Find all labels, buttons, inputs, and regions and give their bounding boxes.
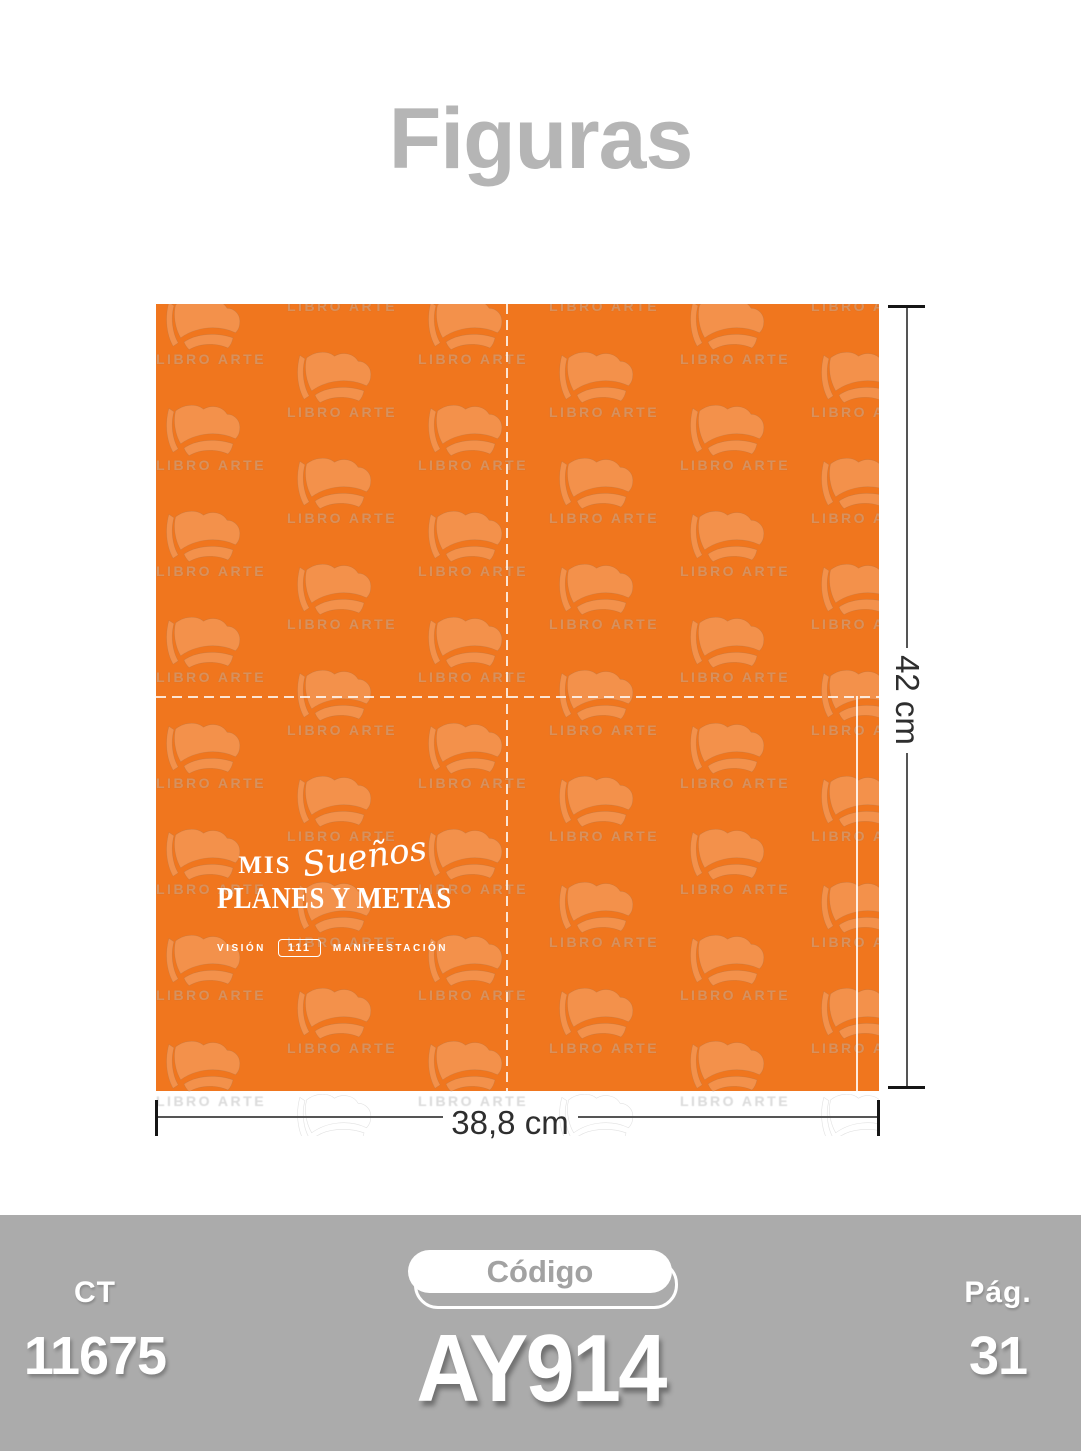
libro-arte-watermark: LIBRO ARTE [680,617,780,685]
libro-arte-watermark: LIBRO ARTE [811,882,879,950]
watermark-text: LIBRO ARTE [287,510,387,526]
libro-arte-watermark: LIBRO ARTE [680,405,780,473]
libro-arte-watermark: LIBRO ARTE [549,352,649,420]
libro-arte-watermark: LIBRO ARTE [549,776,649,844]
libro-arte-watermark: LIBRO ARTE [156,617,256,685]
open-book-icon [424,405,512,459]
width-dimension-label: 38,8 cm [410,1103,610,1143]
watermark-text: LIBRO ARTE [287,404,387,420]
libro-arte-watermark: LIBRO ARTE [811,352,879,420]
open-book-icon [817,776,879,830]
open-book-icon [162,723,250,777]
watermark-text: LIBRO ARTE [549,616,649,632]
open-book-icon [162,405,250,459]
watermark-text: LIBRO ARTE [549,722,649,738]
watermark-text: LIBRO ARTE [811,510,879,526]
open-book-icon [293,458,381,512]
cover-title-line1: MIS Sueños [217,832,448,878]
libro-arte-watermark: LIBRO ARTE [156,723,256,791]
dimension-cap [888,1086,925,1089]
watermark-text: LIBRO ARTE [549,304,649,314]
fold-guide-horizontal-dashed-line [156,696,879,698]
open-book-icon [424,617,512,671]
libro-arte-watermark: LIBRO ARTE [811,304,879,314]
watermark-text: LIBRO ARTE [680,351,780,367]
dimension-line [156,1116,443,1118]
open-book-icon [686,829,774,883]
open-book-icon [555,776,643,830]
libro-arte-watermark: LIBRO ARTE [680,935,780,1003]
libro-arte-watermark: LIBRO ARTE [156,1041,256,1109]
cover-vision-label: VISIÓN [217,943,266,954]
open-book-icon [162,304,250,353]
watermark-text: LIBRO ARTE [156,563,256,579]
watermark-text: LIBRO ARTE [811,722,879,738]
watermark-text: LIBRO ARTE [418,563,518,579]
libro-arte-watermark: LIBRO ARTE [549,988,649,1056]
watermark-text: LIBRO ARTE [811,934,879,950]
watermark-text: LIBRO ARTE [549,510,649,526]
libro-arte-watermark: LIBRO ARTE [549,564,649,632]
code-pill: Código [408,1250,672,1293]
libro-arte-watermark: LIBRO ARTE [287,1094,387,1136]
open-book-icon [162,1041,250,1095]
watermark-text: LIBRO ARTE [680,881,780,897]
open-book-icon [293,564,381,618]
open-book-icon [293,352,381,406]
cover-title-script: Sueños [300,831,429,882]
cover-title-mis: MIS [238,853,291,878]
open-book-icon [162,617,250,671]
open-book-icon [555,352,643,406]
open-book-icon [686,304,774,353]
watermark-text: LIBRO ARTE [549,404,649,420]
dimension-cap [155,1100,158,1136]
libro-arte-watermark: LIBRO ARTE [680,1041,780,1109]
libro-arte-watermark: LIBRO ARTE [287,988,387,1056]
watermark-text: LIBRO ARTE [156,775,256,791]
watermark-text: LIBRO ARTE [418,987,518,1003]
watermark-text: LIBRO ARTE [156,987,256,1003]
watermark-text: LIBRO ARTE [287,304,387,314]
watermark-text: LIBRO ARTE [811,404,879,420]
open-book-icon [424,1041,512,1095]
watermark-text: LIBRO ARTE [156,1093,256,1109]
open-book-icon [555,988,643,1042]
libro-arte-watermark: LIBRO ARTE [680,304,780,367]
libro-arte-watermark: LIBRO ARTE [680,723,780,791]
open-book-icon [686,617,774,671]
libro-arte-watermark: LIBRO ARTE [549,458,649,526]
libro-arte-watermark: LIBRO ARTE [156,405,256,473]
watermark-text: LIBRO ARTE [418,457,518,473]
libro-arte-watermark: LIBRO ARTE [680,829,780,897]
open-book-icon [424,723,512,777]
watermark-text: LIBRO ARTE [549,828,649,844]
watermark-text: LIBRO ARTE [418,351,518,367]
libro-arte-watermark: LIBRO ARTE [287,670,387,738]
open-book-icon [686,723,774,777]
open-book-icon [817,988,879,1042]
open-book-icon [817,882,879,936]
page-number-value: 31 [923,1329,1073,1383]
libro-arte-watermark: LIBRO ARTE [680,511,780,579]
dimension-cap [888,305,925,308]
code-value: AY914 [43,1321,1038,1417]
open-book-icon [424,511,512,565]
watermark-text: LIBRO ARTE [680,669,780,685]
watermark-text: LIBRO ARTE [811,616,879,632]
watermark-text: LIBRO ARTE [287,722,387,738]
libro-arte-watermark: LIBRO ARTE [156,304,256,367]
code-pill-label: Código [487,1254,594,1289]
libro-arte-watermark: LIBRO ARTE [418,1041,518,1109]
open-book-icon [293,988,381,1042]
open-book-icon [817,458,879,512]
watermark-text: LIBRO ARTE [287,616,387,632]
ct-label: CT [20,1278,170,1308]
flap-fold-line [856,696,858,1091]
open-book-icon [293,776,381,830]
dimension-line [578,1116,879,1118]
open-book-icon [686,1041,774,1095]
watermark-text: LIBRO ARTE [287,1040,387,1056]
libro-arte-watermark: LIBRO ARTE [418,617,518,685]
libro-arte-watermark: LIBRO ARTE [549,670,649,738]
cover-subtitle-row: VISIÓN 111 MANIFESTACIÓN [217,939,448,957]
open-book-icon [686,511,774,565]
watermark-text: LIBRO ARTE [549,934,649,950]
libro-arte-watermark: LIBRO ARTE [811,776,879,844]
libro-arte-watermark: LIBRO ARTE [156,511,256,579]
watermark-text: LIBRO ARTE [680,775,780,791]
open-book-icon [555,564,643,618]
watermark-text: LIBRO ARTE [156,457,256,473]
cover-manifestacion-label: MANIFESTACIÓN [333,943,448,954]
open-book-icon [162,511,250,565]
watermark-text: LIBRO ARTE [156,351,256,367]
watermark-text: LIBRO ARTE [549,1040,649,1056]
libro-arte-watermark: LIBRO ARTE [549,304,649,314]
page-number-label: Pág. [923,1278,1073,1308]
watermark-text: LIBRO ARTE [680,563,780,579]
libro-arte-watermark: LIBRO ARTE [811,458,879,526]
watermark-text: LIBRO ARTE [811,304,879,314]
footer-bar: CT 11675 Código AY914 Pág. 31 [0,1215,1081,1451]
open-book-icon [817,352,879,406]
watermark-text: LIBRO ARTE [418,669,518,685]
open-book-icon [424,304,512,353]
libro-arte-watermark: LIBRO ARTE [549,882,649,950]
dimension-line [906,753,908,1088]
libro-arte-watermark: LIBRO ARTE [287,458,387,526]
libro-arte-watermark: LIBRO ARTE [811,670,879,738]
libro-arte-watermark: LIBRO ARTE [418,511,518,579]
libro-arte-watermark: LIBRO ARTE [287,304,387,314]
watermark-text: LIBRO ARTE [418,775,518,791]
libro-arte-watermark: LIBRO ARTE [287,352,387,420]
dimension-line [906,306,908,648]
libro-arte-watermark: LIBRO ARTE [811,1094,879,1136]
cover-design: MIS Sueños PLANES Y METAS VISIÓN 111 MAN… [217,832,448,957]
product-photo: LIBRO ARTELIBRO ARTELIBRO ARTELIBRO ARTE… [156,304,879,1136]
watermark-layer: LIBRO ARTELIBRO ARTELIBRO ARTELIBRO ARTE… [156,304,879,1136]
cover-number-box: 111 [278,939,321,957]
cover-title-main: PLANES Y METAS [217,882,416,913]
open-book-icon [817,564,879,618]
watermark-text: LIBRO ARTE [811,828,879,844]
height-dimension-label: 42 cm [887,640,927,760]
libro-arte-watermark: LIBRO ARTE [418,723,518,791]
open-book-icon [686,405,774,459]
libro-arte-watermark: LIBRO ARTE [811,564,879,632]
dimension-cap [877,1100,880,1136]
watermark-text: LIBRO ARTE [680,987,780,1003]
open-book-icon [817,1094,879,1136]
watermark-text: LIBRO ARTE [680,457,780,473]
watermark-text: LIBRO ARTE [156,669,256,685]
libro-arte-watermark: LIBRO ARTE [811,988,879,1056]
page-title: Figuras [0,96,1081,182]
watermark-text: LIBRO ARTE [811,1040,879,1056]
libro-arte-watermark: LIBRO ARTE [418,304,518,367]
open-book-icon [686,935,774,989]
open-book-icon [555,458,643,512]
open-book-icon [293,1094,381,1136]
libro-arte-watermark: LIBRO ARTE [418,405,518,473]
open-book-icon [555,882,643,936]
watermark-text: LIBRO ARTE [680,1093,780,1109]
libro-arte-watermark: LIBRO ARTE [287,564,387,632]
